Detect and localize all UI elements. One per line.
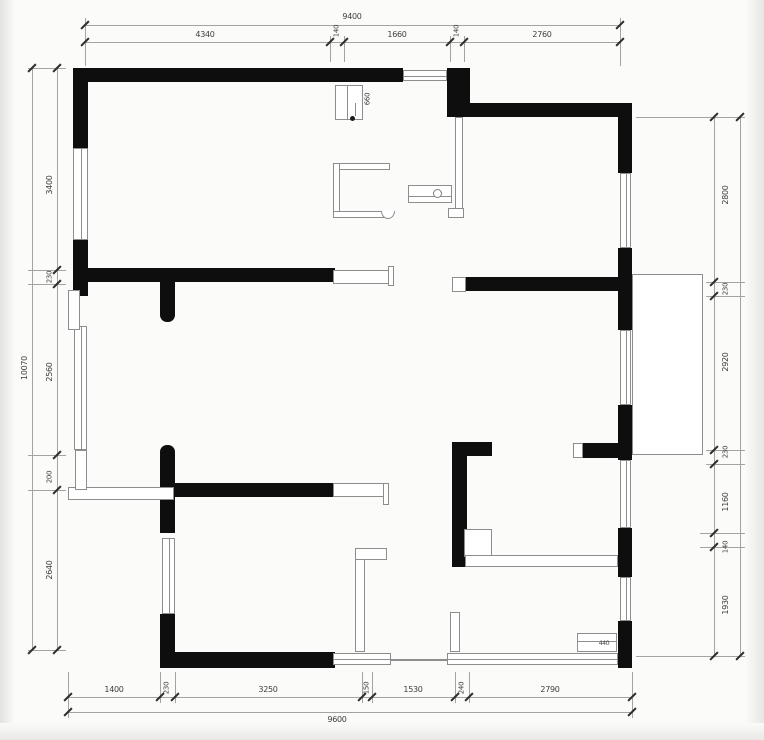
- wall-segment: [618, 103, 632, 173]
- dim-left-1: 3400: [46, 175, 54, 194]
- window-center-line: [169, 539, 170, 613]
- dim-right-4: 230: [723, 446, 730, 458]
- fixture-outline: [450, 612, 460, 652]
- dimension-line: [714, 117, 715, 656]
- dimension-line: [469, 672, 470, 703]
- dim-top-total: 9400: [342, 13, 361, 21]
- dim-left-3: 2560: [46, 362, 54, 381]
- sink-circle: [433, 189, 442, 198]
- window-double-line: [620, 173, 631, 248]
- dimension-line: [28, 650, 66, 651]
- dim-bottom-6: 240: [459, 682, 466, 694]
- wall-segment: [618, 528, 632, 577]
- dim-right-total: 9620: [749, 375, 757, 394]
- window-center-line: [626, 578, 627, 620]
- scan-mark: [4, 3, 13, 12]
- thin-line: [347, 86, 348, 119]
- fixture-outline: [448, 208, 464, 218]
- wall-segment: [455, 103, 632, 117]
- fixture-outline: [355, 548, 365, 652]
- dim-left-2: 230: [47, 271, 54, 283]
- wall-segment: [173, 483, 333, 497]
- dimension-line: [372, 672, 373, 703]
- window-center-line: [626, 331, 627, 404]
- dim-bottom-3: 3250: [258, 686, 277, 694]
- dimension-line: [85, 25, 620, 26]
- wall-segment: [75, 268, 335, 282]
- fixture-outline: [383, 483, 389, 505]
- dim-bottom-7: 2790: [540, 686, 559, 694]
- wall-segment: [75, 68, 403, 82]
- dimension-line: [28, 68, 66, 69]
- dim-bottom-1: 1400: [104, 686, 123, 694]
- fixture-outline: [455, 117, 463, 217]
- window-double-line: [447, 653, 618, 665]
- fixture-outline: [577, 633, 617, 652]
- thin-line: [408, 196, 452, 197]
- window-double-line: [620, 330, 631, 405]
- dim-right-1: 2800: [722, 185, 730, 204]
- dimension-line: [175, 672, 176, 703]
- thin-line: [355, 103, 356, 116]
- thin-line: [390, 659, 447, 661]
- window-double-line: [162, 538, 175, 614]
- fixture-outline: [68, 290, 80, 330]
- dimension-line: [700, 533, 746, 534]
- fixture-outline: [632, 274, 703, 455]
- wall-segment: [583, 443, 632, 458]
- dimension-line: [740, 117, 741, 656]
- window-double-line: [403, 70, 447, 81]
- window-center-line: [626, 174, 627, 247]
- fixture-outline: [75, 450, 87, 490]
- fixture-outline: [333, 163, 390, 170]
- dim-bottom-4: 150: [364, 682, 371, 694]
- window-center-line: [404, 76, 446, 77]
- fixture-label-660: 660: [365, 93, 372, 105]
- window-center-line: [81, 327, 82, 449]
- window-double-line: [333, 653, 391, 665]
- window-double-line: [74, 326, 87, 450]
- fixture-outline: [333, 483, 385, 497]
- scan-mark: [350, 116, 355, 121]
- dim-bottom-total: 9600: [327, 716, 346, 724]
- dimension-line: [636, 656, 746, 657]
- dimension-line: [32, 68, 33, 650]
- fixture-outline: [465, 555, 618, 567]
- dim-bottom-2: 230: [164, 682, 171, 694]
- dim-left-5: 2640: [46, 560, 54, 579]
- fixture-outline: [333, 270, 391, 284]
- fixture-label-440: 440: [599, 641, 610, 647]
- fixture-outline: [388, 266, 394, 286]
- dim-top-2: 140: [334, 25, 341, 37]
- dim-right-7: 1930: [722, 595, 730, 614]
- wall-segment: [618, 621, 632, 668]
- dim-top-5: 2760: [532, 31, 551, 39]
- dimension-line: [85, 42, 620, 43]
- fixture-outline: [333, 163, 340, 218]
- fixture-outline: [452, 277, 466, 292]
- dim-right-2: 230: [723, 283, 730, 295]
- floor-plan-drawing: 9400434014016601402760140023032501501530…: [0, 0, 764, 740]
- dimension-line: [28, 490, 66, 491]
- window-center-line: [626, 461, 627, 527]
- dim-right-3: 2920: [722, 352, 730, 371]
- dim-left-total: 10070: [21, 356, 29, 380]
- wall-segment: [465, 277, 632, 291]
- dim-right-5: 1160: [722, 492, 730, 511]
- wall-segment: [452, 442, 492, 456]
- wall-segment: [73, 68, 88, 148]
- dimension-line: [68, 712, 632, 713]
- floor-plan-canvas: 9400434014016601402760140023032501501530…: [0, 0, 764, 740]
- dim-top-1: 4340: [195, 31, 214, 39]
- fixture-outline: [464, 529, 492, 557]
- dimension-line: [455, 672, 456, 703]
- dim-bottom-5: 1530: [403, 686, 422, 694]
- fixture-outline: [408, 185, 452, 203]
- window-center-line: [334, 659, 390, 660]
- window-double-line: [620, 460, 631, 528]
- window-center-line: [81, 149, 82, 239]
- dim-top-4: 140: [454, 25, 461, 37]
- dimension-line: [28, 455, 66, 456]
- dimension-line: [636, 117, 746, 118]
- window-center-line: [448, 659, 617, 660]
- fixture-outline: [335, 85, 363, 120]
- dim-top-3: 1660: [387, 31, 406, 39]
- dim-left-4: 200: [47, 471, 54, 483]
- wall-segment: [160, 652, 335, 668]
- dimension-line: [68, 697, 632, 698]
- dimension-line: [160, 672, 161, 703]
- fixture-outline: [573, 443, 583, 458]
- dim-right-6: 140: [723, 541, 730, 553]
- dimension-line: [28, 284, 66, 285]
- dimension-line: [57, 68, 58, 650]
- window-double-line: [620, 577, 631, 621]
- fixture-outline: [355, 548, 387, 560]
- thin-line: [577, 641, 617, 642]
- wall-segment: [160, 282, 175, 322]
- window-double-line: [73, 148, 88, 240]
